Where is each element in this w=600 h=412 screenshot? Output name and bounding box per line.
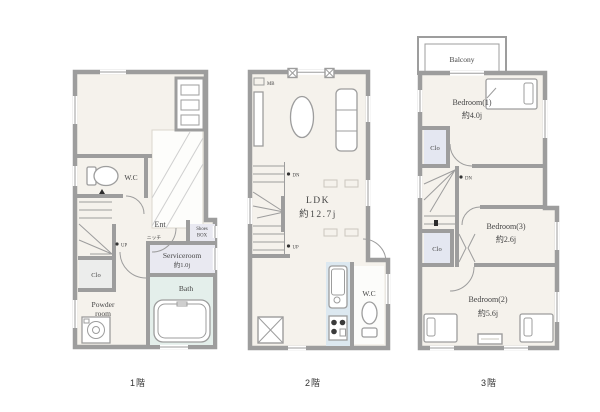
powder-room-label-2: room xyxy=(95,309,111,318)
floor2-caption: 2階 xyxy=(305,378,321,388)
floor-plan-canvas: UP xyxy=(0,0,600,412)
floor1-plan: UP xyxy=(73,70,218,350)
closet-label-3f-upper: Clo xyxy=(430,145,439,152)
toilet-icon-2f xyxy=(362,302,377,337)
up-marker-dot xyxy=(115,242,118,245)
serviceroom-size: 約1.0j xyxy=(174,260,191,269)
floor1-caption: 1階 xyxy=(130,378,146,388)
dining-table-icon xyxy=(291,97,314,138)
sofa-icon xyxy=(336,89,357,151)
counter-desk xyxy=(254,92,263,146)
bed-icon-bedroom1 xyxy=(486,79,537,109)
balcony-label: Balcony xyxy=(450,55,475,64)
floor3-caption: 3階 xyxy=(481,378,497,388)
bedroom3-label: Bedroom(3) xyxy=(486,222,525,231)
bath-label: Bath xyxy=(179,284,193,293)
dn-label-2f: DN xyxy=(293,174,300,179)
niche-label: ニッチ xyxy=(147,235,162,241)
shoes-box-label-2: BOX xyxy=(197,234,208,239)
bedroom1-label: Bedroom(1) xyxy=(452,98,491,107)
wc-label-1f: W.C xyxy=(124,173,137,182)
dn-label-3f: DN xyxy=(465,177,472,182)
bedroom2-size: 約5.6j xyxy=(478,308,498,318)
stair-direction-marker xyxy=(434,220,438,226)
ent-label: Ent xyxy=(154,220,166,229)
floor2-plan: MB DN xyxy=(248,69,390,351)
bedroom2-label: Bedroom(2) xyxy=(468,295,507,304)
up-label-2f: UP xyxy=(293,246,299,251)
bed-icon-bedroom2-left xyxy=(424,314,457,342)
bed-icon-bedroom2-right xyxy=(520,314,553,342)
powder-room-label-1: Powder xyxy=(92,300,115,309)
bathtub-icon xyxy=(154,300,210,342)
washing-machine-icon xyxy=(82,317,110,343)
closet-label-1f: Clo xyxy=(91,272,100,279)
crossed-square xyxy=(258,317,283,343)
wc-label-2f: W.C xyxy=(362,289,375,298)
dn-marker-dot-2f xyxy=(287,172,290,175)
floor3-plan: Balcony xyxy=(418,37,560,350)
dn-marker-dot-3f xyxy=(459,175,462,178)
closet-label-3f-lower: Clo xyxy=(432,246,441,253)
bedroom1-size: 約4.0j xyxy=(462,110,482,120)
mb-label: MB xyxy=(267,82,274,87)
entrance-porch xyxy=(152,130,203,228)
balcony: Balcony xyxy=(418,37,506,74)
kitchen-sink-icon xyxy=(329,266,347,308)
cabinet-box xyxy=(478,334,502,344)
toilet-icon-1f xyxy=(87,167,118,186)
entrance-steps xyxy=(176,78,204,130)
stove-icon xyxy=(329,316,347,340)
ldk-label: LDK xyxy=(306,196,330,206)
bedroom3-size: 約2.6j xyxy=(496,234,516,244)
serviceroom-label: Serviceroom xyxy=(163,251,201,260)
up-label-1f: UP xyxy=(121,244,127,249)
ldk-size: 約12.7j xyxy=(299,208,337,220)
up-marker-dot-2f xyxy=(287,244,290,247)
floor-plan-drawing: UP xyxy=(0,0,600,412)
shoes-box-label-1: Shoes xyxy=(196,227,208,232)
